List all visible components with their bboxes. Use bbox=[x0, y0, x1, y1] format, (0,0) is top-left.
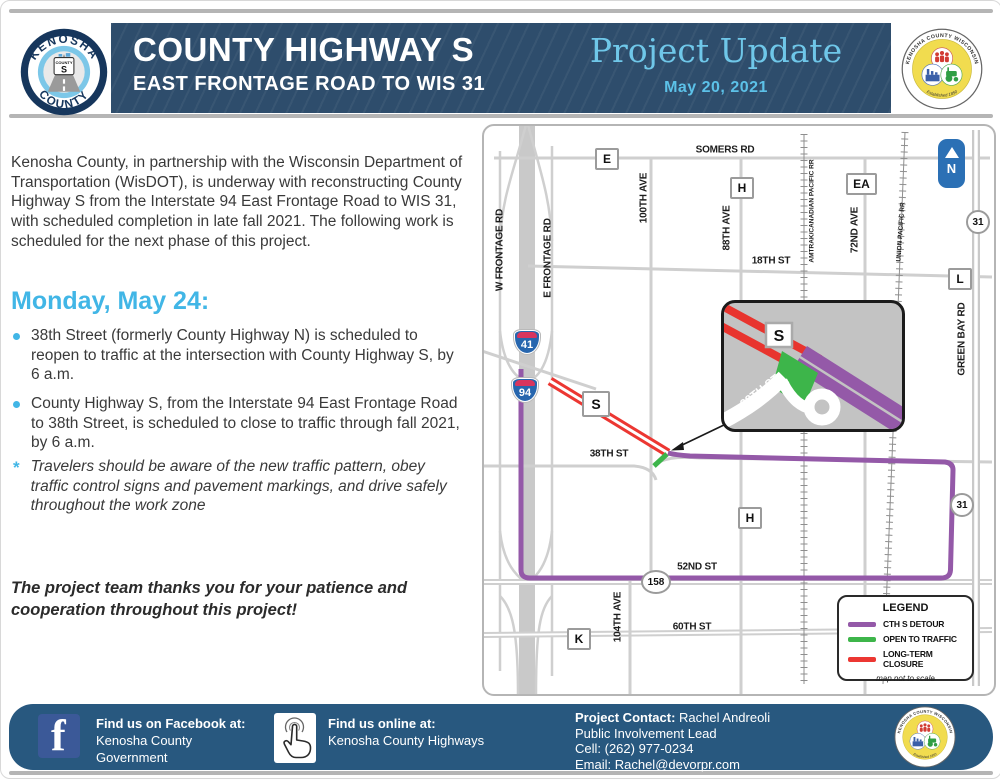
list-item: County Highway S, from the Interstate 94… bbox=[13, 394, 465, 453]
people-icon bbox=[935, 51, 949, 62]
click-hand-icon[interactable] bbox=[274, 713, 316, 763]
closure-swatch-icon bbox=[848, 657, 876, 662]
marker-county-h-north: H bbox=[730, 177, 754, 199]
closing-message: The project team thanks you for your pat… bbox=[11, 577, 441, 622]
contact-block: Project Contact: Rachel Andreoli Public … bbox=[575, 710, 770, 772]
marker-county-e: E bbox=[595, 148, 619, 170]
facebook-heading: Find us on Facebook at: bbox=[96, 715, 246, 732]
marker-wis31-south: 31 bbox=[950, 493, 974, 517]
project-map: SOMERS RD 18TH ST 38TH ST 52ND ST 60TH S… bbox=[482, 124, 996, 696]
header-bottom-rule bbox=[9, 114, 993, 118]
map-legend: LEGEND CTH S DETOUR OPEN TO TRAFFIC LONG… bbox=[837, 595, 974, 681]
project-update-label: Project Update bbox=[561, 31, 871, 70]
open-swatch-icon bbox=[848, 637, 876, 642]
marker-county-h-south: H bbox=[738, 507, 762, 529]
bullet-icon bbox=[13, 333, 20, 340]
marker-county-ea: EA bbox=[846, 173, 877, 195]
header-banner: COUNTY HIGHWAY S EAST FRONTAGE ROAD TO W… bbox=[111, 23, 891, 113]
road-label-18th: 18TH ST bbox=[752, 256, 791, 267]
bottom-rule bbox=[9, 771, 993, 775]
note-text: Travelers should be aware of the new tra… bbox=[31, 457, 465, 516]
road-label-104th: 104TH AVE bbox=[613, 592, 624, 642]
contact-role: Public Involvement Lead bbox=[575, 726, 770, 742]
online-heading: Find us online at: bbox=[328, 715, 484, 732]
road-label-green-bay: GREEN BAY RD bbox=[957, 302, 968, 375]
intersection-inset: 38TH ST S bbox=[721, 300, 905, 432]
legend-note: map not to scale bbox=[848, 674, 963, 683]
intro-paragraph: Kenosha County, in partnership with the … bbox=[11, 153, 475, 251]
railroad-label-amtrak: AMTRAK/CANADIAN PACIFIC RR bbox=[809, 159, 816, 262]
road-label-38th: 38TH ST bbox=[590, 449, 629, 460]
bullet-text: County Highway S, from the Interstate 94… bbox=[31, 394, 465, 453]
marker-wis158: 158 bbox=[641, 570, 671, 594]
marker-county-l: L bbox=[948, 268, 972, 290]
road-label-somers: SOMERS RD bbox=[696, 145, 755, 156]
kenosha-county-highway-logo: KENOSHA COUNTY COUNTY S bbox=[19, 27, 109, 117]
date-label: May 20, 2021 bbox=[561, 79, 871, 97]
legend-item: LONG-TERM CLOSURE bbox=[848, 649, 963, 669]
inset-s-marker: S bbox=[774, 328, 785, 345]
kenosha-county-seal: KENOSHA COUNTY WISCONSIN Established 185… bbox=[901, 28, 983, 110]
note-item: * Travelers should be aware of the new t… bbox=[13, 457, 465, 516]
contact-cell: Cell: (262) 977-0234 bbox=[575, 741, 770, 757]
bullet-text: 38th Street (formerly County Highway N) … bbox=[31, 326, 465, 385]
bullet-icon bbox=[13, 401, 20, 408]
legend-item: OPEN TO TRAFFIC bbox=[848, 634, 963, 644]
kenosha-county-seal-footer: KENOSHA COUNTY WISCONSIN Established 185… bbox=[894, 706, 956, 768]
road-label-88th: 88TH AVE bbox=[722, 205, 733, 250]
flyer-page: COUNTY HIGHWAY S EAST FRONTAGE ROAD TO W… bbox=[0, 0, 1000, 779]
sign-letter: S bbox=[61, 64, 67, 74]
county-seal-icon: KENOSHA COUNTY WISCONSIN Established 185… bbox=[901, 28, 983, 110]
road-label-60th: 60TH ST bbox=[673, 622, 712, 633]
top-rule bbox=[9, 9, 993, 13]
section-heading: Monday, May 24: bbox=[11, 287, 209, 316]
asterisk-icon: * bbox=[13, 459, 20, 516]
county-logo-icon: KENOSHA COUNTY COUNTY S bbox=[19, 27, 109, 117]
legend-item: CTH S DETOUR bbox=[848, 619, 963, 629]
facebook-text: Find us on Facebook at: Kenosha County G… bbox=[96, 715, 246, 766]
footer-bar: f Find us on Facebook at: Kenosha County… bbox=[9, 704, 993, 770]
facebook-line1[interactable]: Kenosha County bbox=[96, 732, 246, 749]
road-label-72nd: 72ND AVE bbox=[850, 207, 861, 253]
road-label-w-frontage: W FRONTAGE RD bbox=[495, 209, 506, 291]
inset-graphic: 38TH ST S bbox=[724, 303, 904, 431]
marker-county-s: S bbox=[582, 391, 610, 417]
detour-swatch-icon bbox=[848, 622, 876, 627]
county-seal-icon: KENOSHA COUNTY WISCONSIN Established 185… bbox=[894, 706, 956, 768]
page-subtitle: EAST FRONTAGE ROAD TO WIS 31 bbox=[133, 73, 485, 96]
north-arrow: N bbox=[938, 139, 965, 188]
north-triangle-icon bbox=[945, 147, 959, 158]
contact-email[interactable]: Email: Rachel@devorpr.com bbox=[575, 757, 770, 773]
road-label-e-frontage: E FRONTAGE RD bbox=[543, 218, 554, 297]
online-line1[interactable]: Kenosha County Highways bbox=[328, 732, 484, 749]
facebook-icon[interactable]: f bbox=[38, 714, 80, 758]
body-column: Kenosha County, in partnership with the … bbox=[11, 151, 477, 699]
legend-title: LEGEND bbox=[848, 602, 963, 614]
inset-pointer-arrow bbox=[671, 424, 726, 451]
marker-wis31-north: 31 bbox=[966, 210, 990, 234]
page-title: COUNTY HIGHWAY S bbox=[133, 31, 474, 69]
road-label-100th: 100TH AVE bbox=[639, 173, 650, 223]
marker-county-k: K bbox=[567, 628, 591, 650]
facebook-line2[interactable]: Government bbox=[96, 749, 246, 766]
online-text: Find us online at: Kenosha County Highwa… bbox=[328, 715, 484, 749]
list-item: 38th Street (formerly County Highway N) … bbox=[13, 326, 465, 385]
contact-name-line: Project Contact: Rachel Andreoli bbox=[575, 710, 770, 726]
road-label-52nd: 52ND ST bbox=[677, 562, 717, 573]
